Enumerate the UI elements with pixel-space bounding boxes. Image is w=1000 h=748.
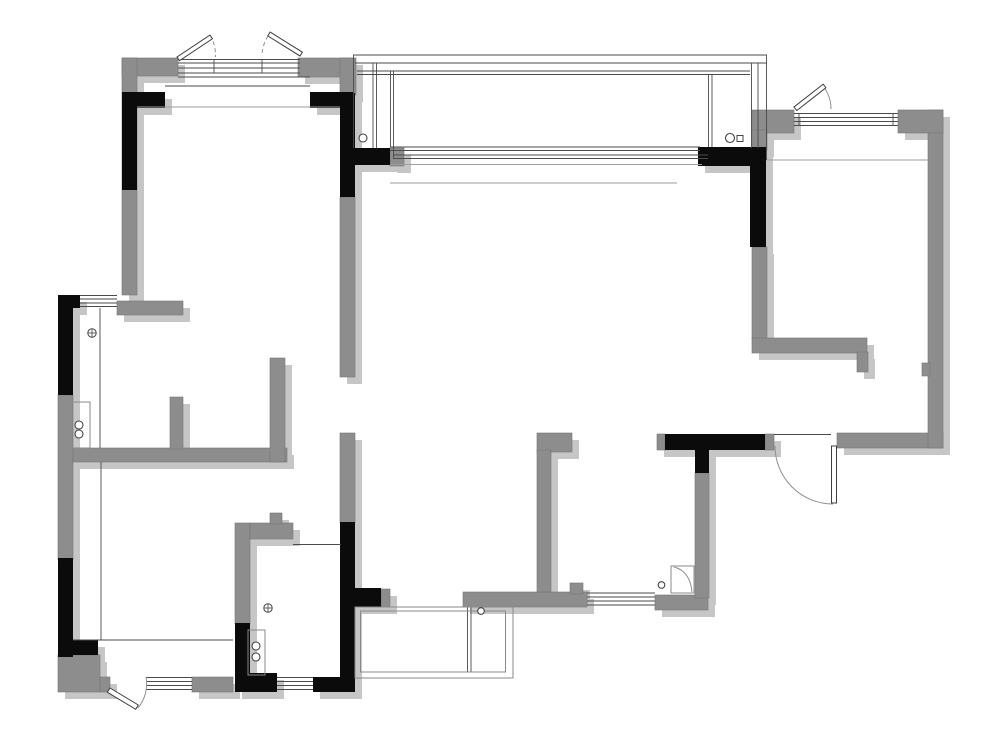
- door-leaf: [832, 446, 837, 503]
- pipe-circle-icon: [252, 642, 260, 650]
- door-leaf: [177, 35, 212, 61]
- vent-square-icon: [737, 136, 743, 142]
- pipe-circle-icon: [658, 582, 665, 589]
- pipe-circle-icon: [75, 421, 83, 429]
- pipe-circle-icon: [726, 134, 735, 143]
- casement-swing-arcs: [210, 35, 268, 57]
- floor-plan-page: [0, 0, 1000, 748]
- floor-plan-figure: [0, 0, 1000, 748]
- door-leaf: [794, 84, 826, 110]
- fixture-outlines: [72, 402, 694, 678]
- floor-plan-canvas: [0, 0, 1000, 748]
- pipe-circle-icon: [75, 430, 83, 438]
- pipe-circle-icon: [359, 134, 367, 142]
- gray-walls: [58, 58, 943, 692]
- pipe-circle-icon: [478, 608, 485, 615]
- pipe-circle-icon: [252, 653, 260, 661]
- curtain-lines: [137, 107, 928, 183]
- door-leaf: [268, 32, 303, 56]
